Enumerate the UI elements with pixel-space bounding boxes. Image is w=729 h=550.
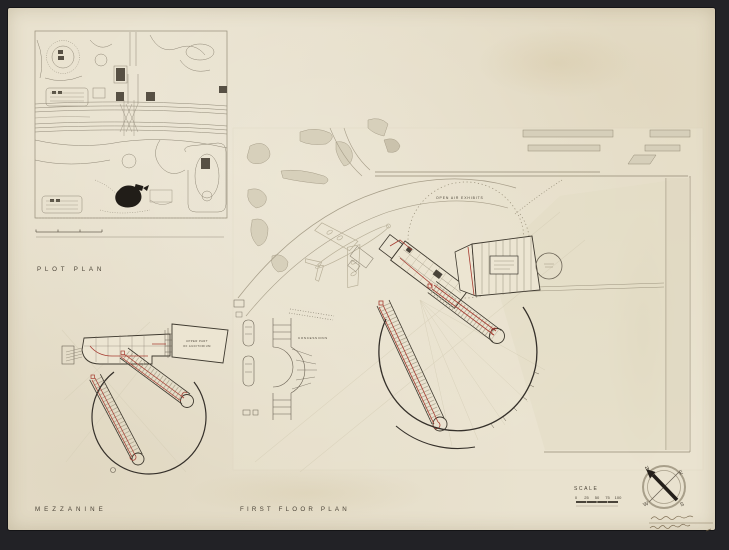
scanned-drawing-sheet: OPEN AIR EXHIBITS CONCESSIONS UPPER PART… <box>0 0 729 550</box>
site-building-blob <box>115 184 149 207</box>
mezzanine-label: MEZZANINE <box>35 506 107 513</box>
open-air-exhibits-label: OPEN AIR EXHIBITS <box>436 196 484 200</box>
concessions-label: CONCESSIONS <box>298 336 328 340</box>
scale-tick-75: 75 <box>605 495 610 500</box>
scale-tick-25: 25 <box>584 495 589 500</box>
compass-rose: N E S W <box>642 465 685 508</box>
compass-e: E <box>678 469 684 476</box>
upper-part-note-line2: OF AUDITORIUM <box>183 344 211 348</box>
upper-part-note-line1: UPPER PART <box>186 339 208 343</box>
signature-handwriting <box>649 516 713 531</box>
mezzanine-plan-drawing: UPPER PART OF AUDITORIUM <box>62 322 228 474</box>
scale-label: SCALE <box>574 486 598 492</box>
mezz-main-block <box>62 334 170 364</box>
scale-tick-50: 50 <box>595 495 600 500</box>
plot-plan-drawing <box>35 31 227 237</box>
scale-tick-0: 0 <box>575 495 578 500</box>
compass-north-arrow <box>646 469 677 500</box>
mezz-ramps <box>90 348 194 465</box>
mezz-circle-arc <box>92 372 206 474</box>
compass-s: S <box>679 501 685 508</box>
first-floor-plan-drawing: OPEN AIR EXHIBITS CONCESSIONS <box>233 119 703 472</box>
plot-plan-label: PLOT PLAN <box>37 266 105 273</box>
drawing-linework: OPEN AIR EXHIBITS CONCESSIONS UPPER PART… <box>0 0 729 550</box>
mezz-auditorium: UPPER PART OF AUDITORIUM <box>165 324 228 363</box>
scale-bar: SCALE 0 25 50 75 100 <box>574 486 622 506</box>
first-floor-plan-label: FIRST FLOOR PLAN <box>240 506 350 513</box>
scale-tick-100: 100 <box>615 495 622 500</box>
